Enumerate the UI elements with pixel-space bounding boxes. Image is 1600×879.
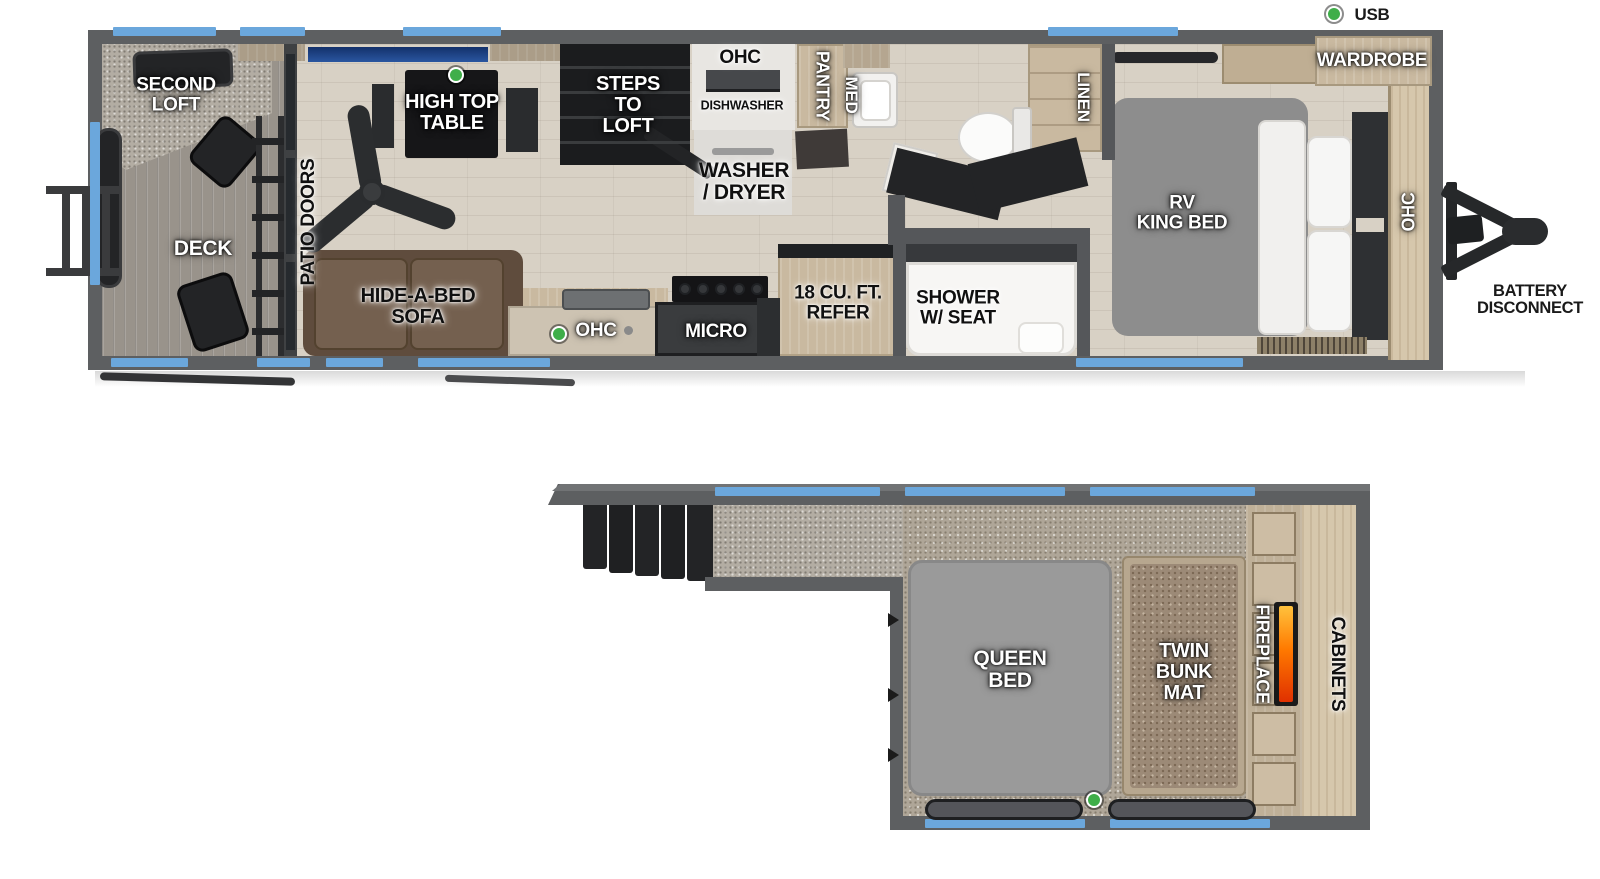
kitchen-sink (562, 289, 650, 310)
hide-a-bed-sofa-label: HIDE-A-BED SOFA (361, 286, 476, 328)
kitchen-ohc-label: OHC (575, 321, 616, 341)
refer-label: 18 CU. FT. REFER (794, 283, 882, 323)
floorplan-main: USB SECOND LOFT DECK PATIO DOORS HIGH TO… (0, 0, 1600, 440)
bed-step-tray (1108, 799, 1256, 820)
loft-ladder-rail (256, 116, 262, 356)
med-label: MED (842, 77, 860, 114)
wardrobe-shelf (1222, 44, 1318, 84)
bed-slat-mat (1257, 337, 1367, 354)
burner (715, 283, 727, 295)
window (111, 358, 188, 367)
washer-dryer-slot (712, 148, 774, 155)
exterior-ladder-rung (62, 192, 70, 272)
ceiling-fan-hub (359, 179, 385, 205)
patio-doors-label: PATIO DOORS (299, 159, 319, 286)
bath-sink-basin (860, 80, 891, 121)
shower-wall (1077, 228, 1090, 356)
bedding-panel (1258, 120, 1306, 335)
battery-disconnect-label: BATTERY DISCONNECT (1477, 283, 1583, 317)
loft-stair-step (661, 505, 685, 579)
wardrobe-label: WARDROBE (1317, 51, 1428, 71)
loft-ladder-rung (252, 328, 288, 335)
dinette-bench (506, 88, 538, 152)
window (113, 27, 216, 36)
shower-seat (1018, 322, 1064, 354)
bedroom-ohc-label: OHC (1400, 192, 1419, 231)
loft-stair-step (635, 505, 659, 576)
usb-indicator (1086, 792, 1102, 808)
steps-to-loft-label: STEPS TO LOFT (596, 74, 660, 136)
counter-appliance (757, 298, 780, 356)
usb-indicator (1326, 6, 1342, 22)
high-top-table-label: HIGH TOP TABLE (405, 92, 499, 134)
floorplan-canvas: USB SECOND LOFT DECK PATIO DOORS HIGH TO… (0, 0, 1600, 879)
pantry-label: PANTRY (813, 51, 832, 121)
micro-label: MICRO (685, 322, 747, 342)
loft-ladder-rung (252, 214, 288, 221)
linen-label: LINEN (1074, 72, 1092, 122)
washer-dryer-label: WASHER / DRYER (699, 160, 789, 204)
loft-ladder-rung (252, 252, 288, 259)
refrigerator-counter (778, 244, 898, 258)
usb-indicator (448, 67, 464, 83)
window (403, 27, 501, 36)
window (1048, 27, 1178, 36)
dishwasher-label: DISHWASHER (701, 100, 784, 113)
pillow (1307, 136, 1352, 228)
window (240, 27, 305, 36)
window (257, 358, 310, 367)
battery-box (1446, 214, 1485, 245)
loft-stair-step (583, 505, 607, 569)
fireplace-label: FIREPLACE (1253, 604, 1272, 703)
cabinet-panel (1252, 562, 1296, 606)
fireplace-flame (1279, 606, 1293, 702)
cabinets-label: CABINETS (1327, 617, 1347, 712)
loft-ladder-rung (252, 290, 288, 297)
window (905, 487, 1065, 496)
queen-bed-label: QUEEN BED (973, 648, 1046, 692)
window (418, 358, 550, 367)
exterior-ladder-rung (102, 192, 110, 272)
patio-door-glass (286, 158, 295, 254)
bed-frame-gap (1356, 218, 1384, 232)
slide-arrow (888, 613, 899, 627)
window (1090, 487, 1255, 496)
cabinet-panel (1252, 512, 1296, 556)
shower-wall (893, 228, 906, 356)
pantry-lower-cabinet (795, 129, 849, 170)
floorplan-loft: QUEEN BED TWIN BUNK MAT FIREPLACE CABINE… (0, 440, 1600, 879)
loft-ladder-rung (252, 176, 288, 183)
rv-king-bed-label: RV KING BED (1137, 193, 1228, 233)
med-upper-cabinet (843, 44, 890, 68)
window (715, 487, 880, 496)
shower-wall (893, 228, 1090, 244)
burner (733, 283, 745, 295)
twin-bunk-mat-label: TWIN BUNK MAT (1156, 641, 1213, 703)
ground-shadow (95, 371, 1525, 387)
burner (697, 283, 709, 295)
slide-arrow (888, 748, 899, 762)
loft-walkway-floor (713, 505, 903, 577)
bed-step-tray (925, 799, 1083, 820)
dishwasher-cabinet (706, 70, 780, 92)
dinette-ohc-label: OHC (719, 48, 760, 68)
loft-stair-step (687, 505, 713, 581)
second-loft-label: SECOND LOFT (136, 75, 216, 115)
cabinet-panel (1252, 712, 1296, 756)
loft-walkway-wall (705, 577, 903, 591)
shower-label: SHOWER W/ SEAT (916, 288, 1000, 328)
window (1110, 819, 1270, 828)
loft-right-wall (1356, 484, 1370, 830)
dinette-window-glass (308, 47, 488, 62)
patio-door-glass (286, 54, 295, 150)
hitch-coupler (1502, 218, 1548, 245)
loft-stair-step (609, 505, 633, 573)
usb-indicator (551, 326, 567, 342)
slide-arrow (888, 688, 899, 702)
patio-door-glass (286, 262, 295, 350)
burner (751, 283, 763, 295)
window (326, 358, 383, 367)
window (925, 819, 1085, 828)
deck-label: DECK (174, 238, 232, 260)
exterior-ladder-rung (82, 192, 90, 272)
entry-door-window (90, 122, 100, 285)
ohc-knob (624, 326, 633, 335)
burner (679, 283, 691, 295)
window (1076, 358, 1243, 367)
cabinet-panel (1252, 762, 1296, 806)
dinette-bench (372, 84, 394, 148)
towel-bar (1112, 52, 1218, 63)
bath-wall (1102, 44, 1115, 160)
usb-legend-label: USB (1355, 6, 1390, 24)
loft-ladder-rung (252, 138, 288, 145)
shower-glass (906, 244, 1077, 262)
pillow (1307, 230, 1352, 332)
